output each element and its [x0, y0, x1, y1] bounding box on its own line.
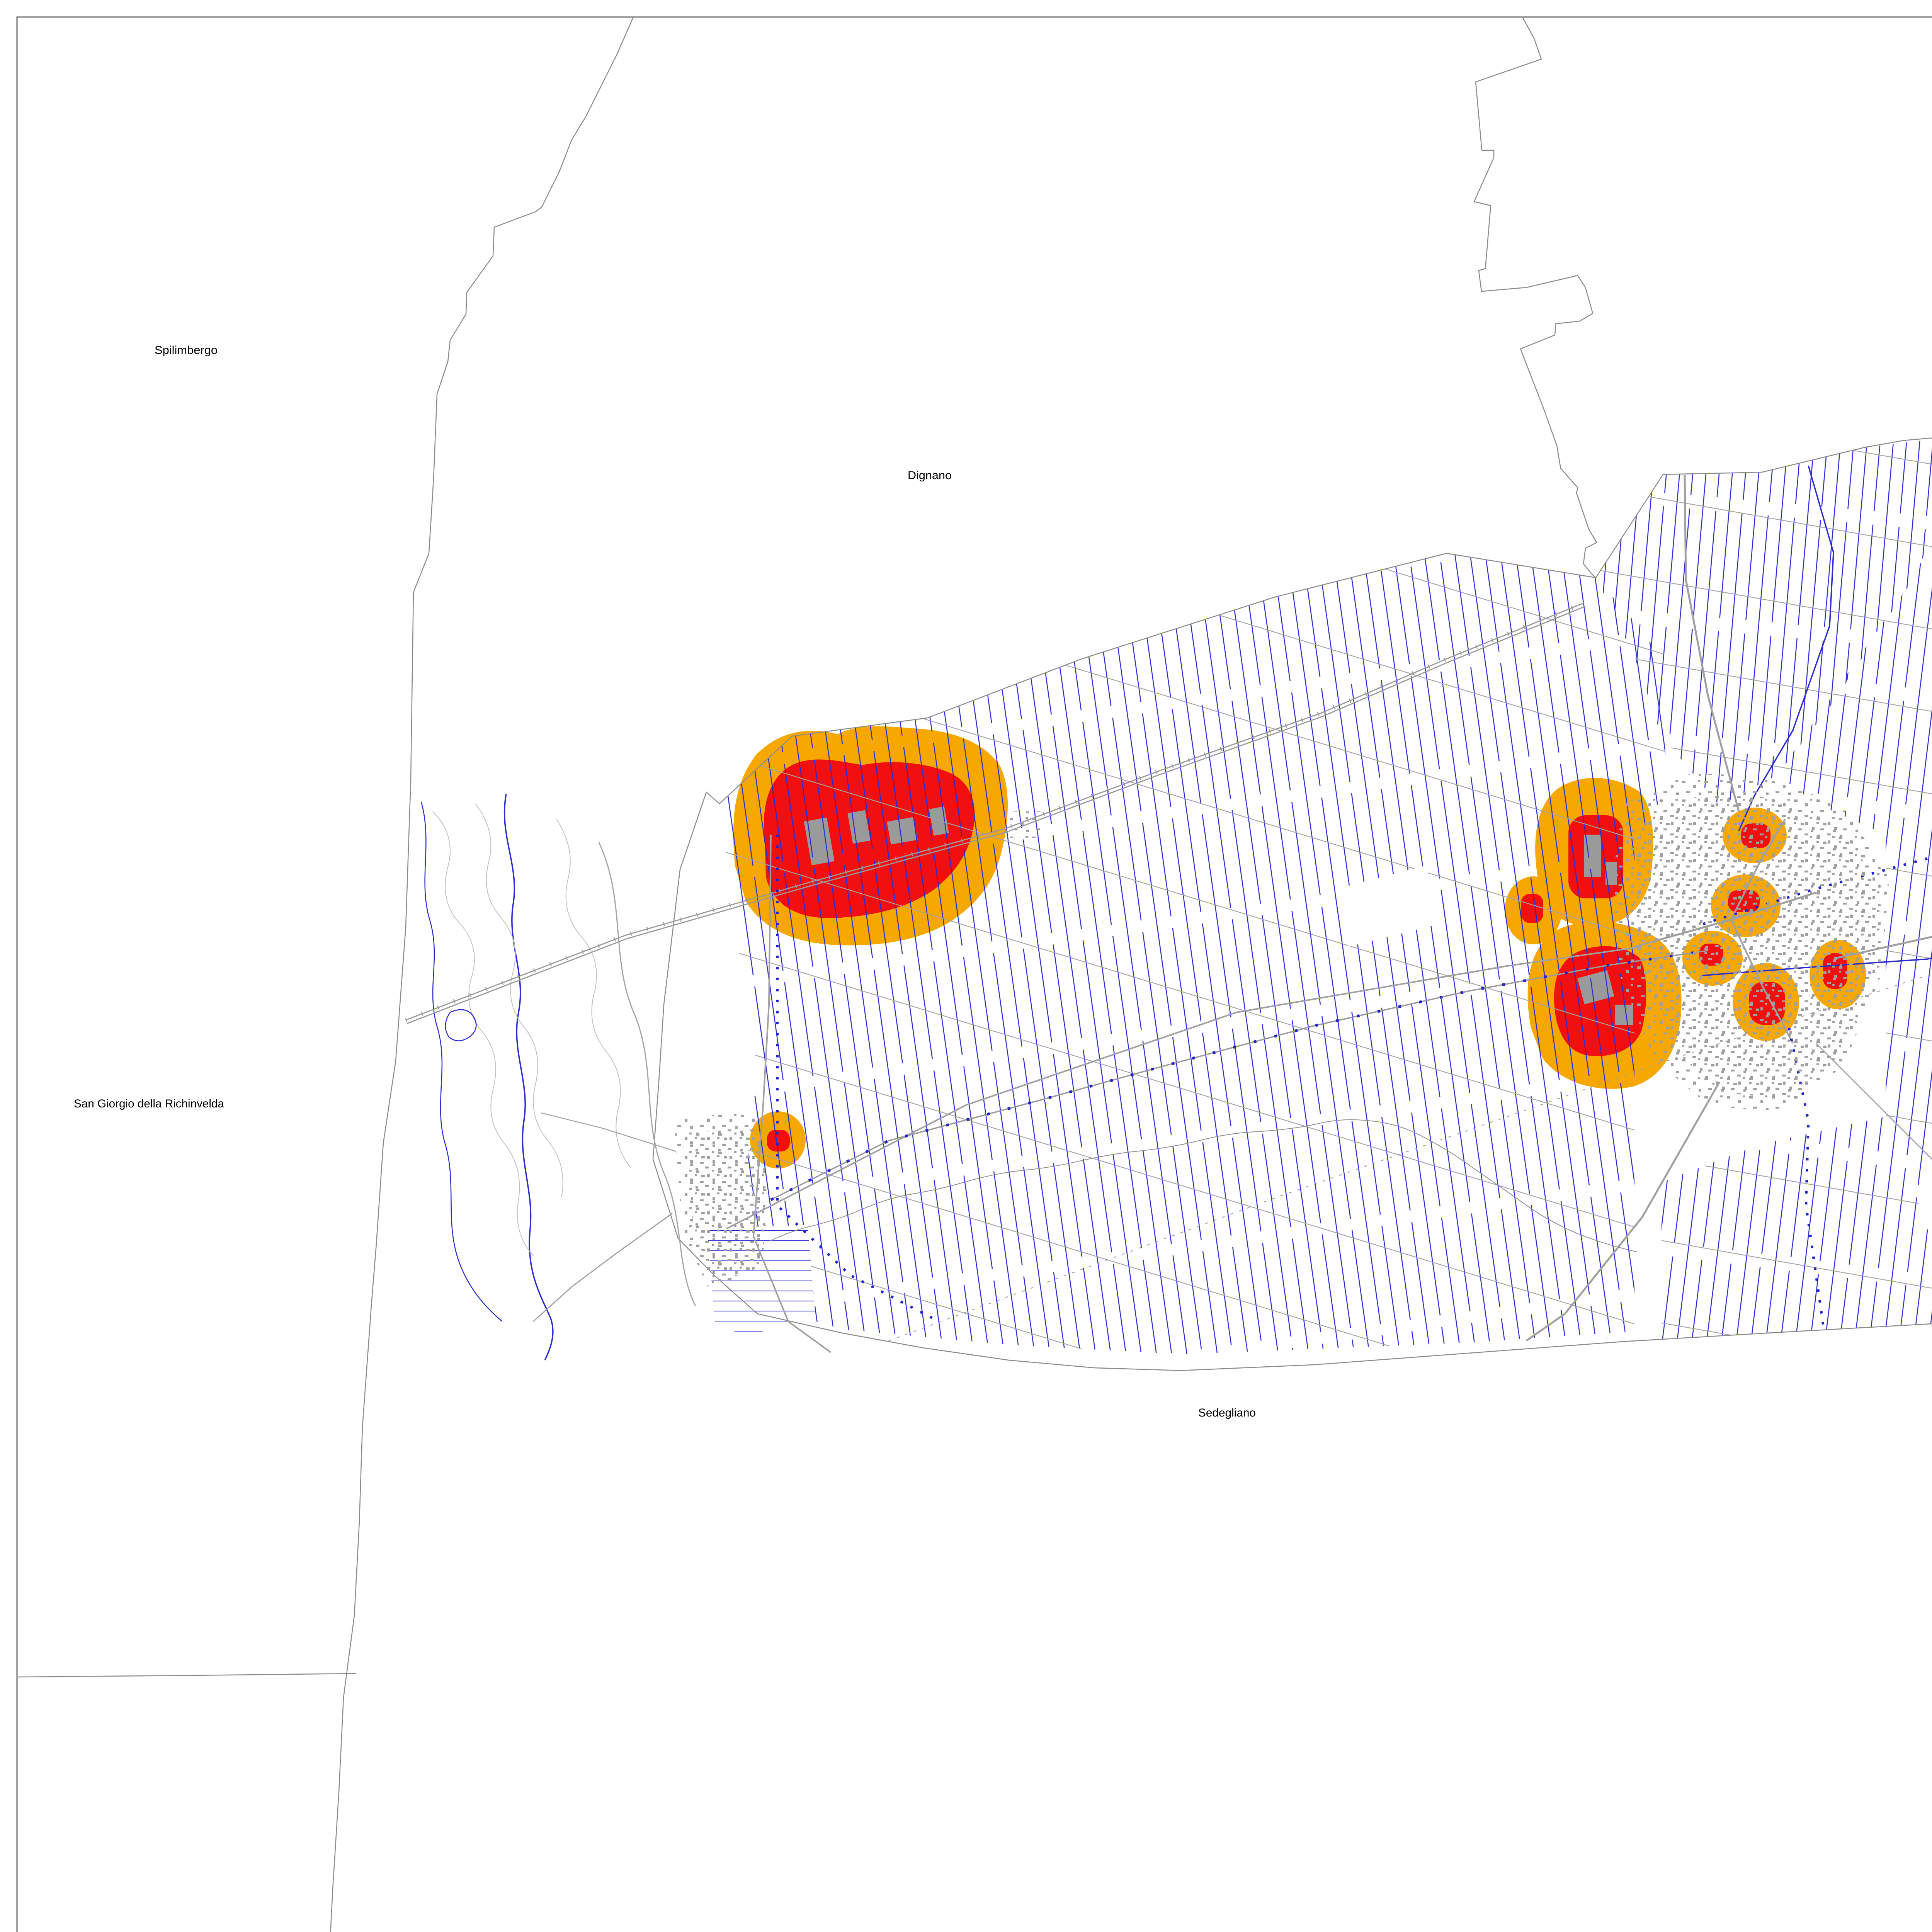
svg-text:Dignano: Dignano — [908, 469, 952, 482]
svg-text:San Giorgio della Richinvelda: San Giorgio della Richinvelda — [74, 1097, 224, 1110]
svg-text:Spilimbergo: Spilimbergo — [155, 344, 218, 357]
svg-text:Sedegliano: Sedegliano — [1198, 1406, 1256, 1419]
